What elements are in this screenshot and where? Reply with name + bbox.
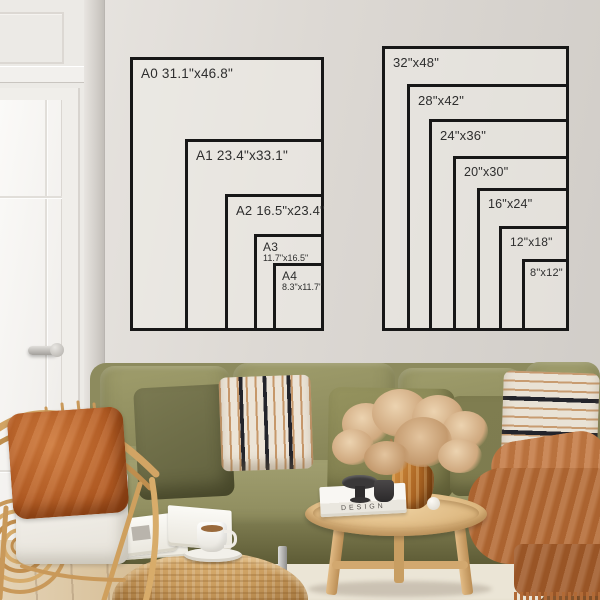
size-label-8x12: 8"x12" bbox=[530, 267, 563, 279]
size-label-16x24: 16"x24" bbox=[488, 197, 532, 211]
a-series-size-chart: A031.1"x46.8" A123.4"x33.1" A216.5"x23.4… bbox=[130, 57, 324, 331]
size-label-12x18: 12"x18" bbox=[510, 235, 553, 249]
coffee-cup-with-saucer bbox=[184, 522, 242, 564]
door-panel-bevel bbox=[0, 196, 62, 198]
door-handle-rosette bbox=[50, 343, 64, 357]
chair-frame-front bbox=[0, 388, 166, 600]
size-label-24x36: 24"x36" bbox=[440, 128, 486, 143]
coffee-table: DESIGN bbox=[300, 455, 500, 600]
size-rect-8x12: 8"x12" bbox=[522, 259, 569, 331]
inch-series-size-chart: 32"x48" 28"x42" 24"x36" 20"x30" 16"x24" … bbox=[382, 46, 569, 331]
throw-blanket bbox=[514, 544, 600, 596]
size-label-32x48: 32"x48" bbox=[393, 55, 439, 70]
book-title: DESIGN bbox=[341, 503, 386, 512]
size-label-a3: A311.7"x16.5" bbox=[263, 241, 308, 263]
black-cup bbox=[374, 480, 394, 502]
decor-ball bbox=[427, 497, 440, 510]
size-label-28x42: 28"x42" bbox=[418, 93, 464, 108]
size-label-a0: A031.1"x46.8" bbox=[141, 66, 233, 81]
size-label-20x30: 20"x30" bbox=[464, 165, 508, 179]
scene: A031.1"x46.8" A123.4"x33.1" A216.5"x23.4… bbox=[0, 0, 600, 600]
table-post bbox=[394, 531, 404, 583]
coffee-surface bbox=[201, 525, 223, 532]
dried-flowers bbox=[438, 439, 482, 473]
dried-flowers bbox=[364, 441, 410, 475]
cup-handle bbox=[224, 530, 237, 548]
rattan-chair bbox=[0, 388, 166, 600]
size-label-a4: A48.3"x11.7" bbox=[282, 270, 322, 292]
wall-molding-panel bbox=[0, 12, 64, 64]
size-label-a1: A123.4"x33.1" bbox=[196, 148, 288, 163]
size-rect-a4: A48.3"x11.7" bbox=[273, 263, 324, 331]
size-label-a2: A216.5"x23.4" bbox=[236, 203, 325, 218]
throw-fringe bbox=[514, 592, 600, 600]
bowl-foot bbox=[350, 497, 370, 503]
